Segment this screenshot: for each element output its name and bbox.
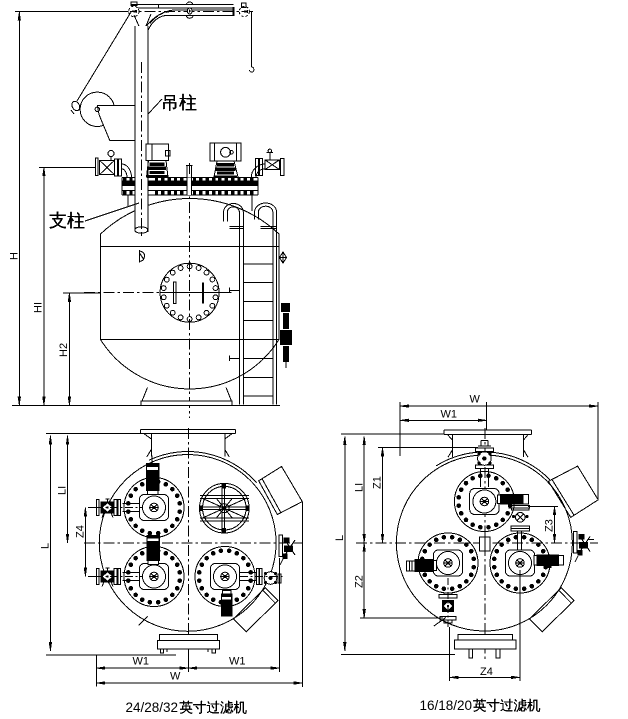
svg-text:24/28/32: 24/28/32 [126, 700, 179, 715]
svg-text:Z2: Z2 [354, 575, 366, 588]
svg-text:HI: HI [33, 302, 45, 313]
svg-text:Z4: Z4 [75, 525, 87, 538]
svg-text:L: L [334, 535, 346, 541]
svg-text:W: W [170, 671, 181, 683]
svg-text:L: L [40, 543, 52, 549]
svg-text:16/18/20: 16/18/20 [420, 698, 473, 713]
svg-text:W1: W1 [441, 409, 458, 421]
svg-text:W1: W1 [229, 656, 246, 668]
svg-text:LI: LI [354, 483, 366, 492]
svg-text:Z4: Z4 [480, 666, 493, 678]
svg-text:Z3: Z3 [544, 519, 556, 532]
svg-text:H: H [9, 252, 21, 260]
svg-text:W1: W1 [133, 656, 150, 668]
svg-text:LI: LI [57, 486, 69, 495]
svg-text:W: W [470, 394, 481, 406]
svg-text:H2: H2 [58, 343, 70, 357]
svg-text:Z1: Z1 [372, 476, 384, 489]
